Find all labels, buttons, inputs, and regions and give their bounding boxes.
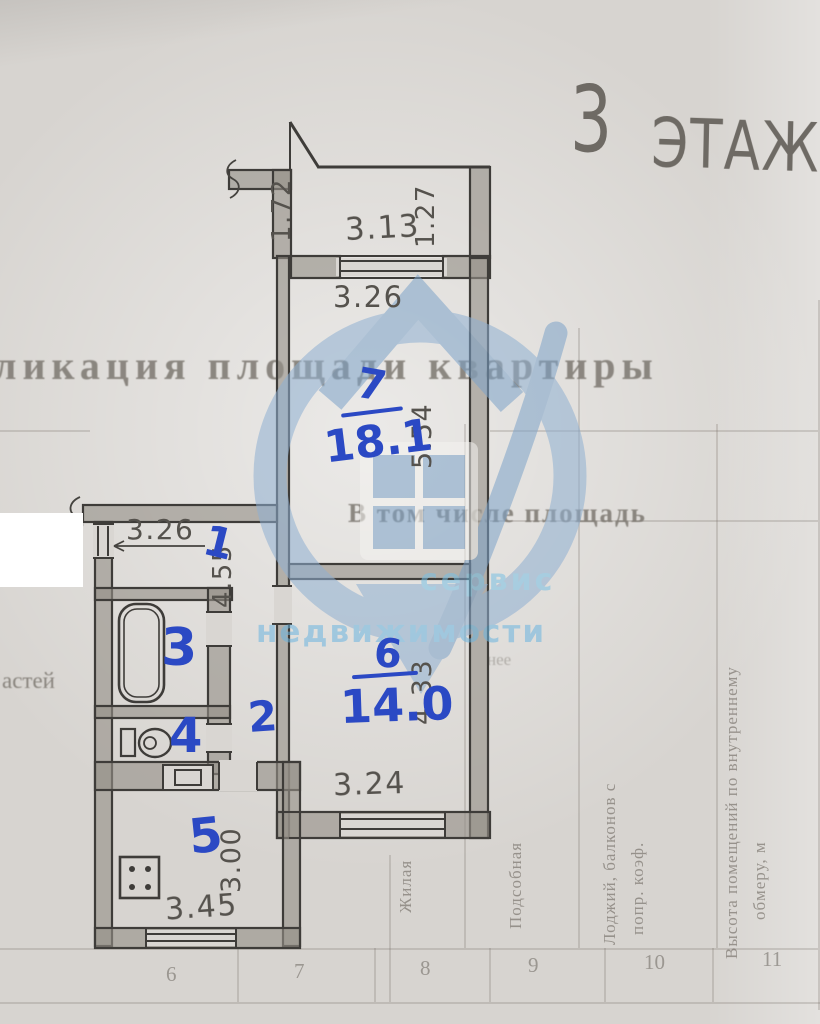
dim-balcony-side-right: 1.27 <box>413 184 439 248</box>
dim-balcony-side-left: 1.72 <box>269 178 295 242</box>
dim-room6-window: 3.24 <box>332 769 406 802</box>
redaction-box <box>0 513 83 587</box>
dim-room7-width: 3.26 <box>333 283 404 312</box>
room-number-5: 5 <box>187 810 225 861</box>
room-number-3: 3 <box>161 622 197 674</box>
floor-word: ЭТАЖ <box>651 110 820 184</box>
dim-balcony-width: 3.13 <box>344 211 421 246</box>
dim-kitchen-width: 3.45 <box>164 890 239 925</box>
room-number-2: 2 <box>247 695 279 739</box>
dim-room1-width: 3.26 <box>126 516 194 544</box>
room-number-4: 4 <box>169 712 202 760</box>
scanned-floor-plan-page: ликация площади квартиры В том числе пло… <box>0 0 820 1024</box>
watermark-text-line1: сервис <box>420 563 555 598</box>
room-6-area: 14.0 <box>339 680 454 730</box>
floor-number: 3 <box>570 74 612 166</box>
room-number-6: 6 <box>372 633 404 676</box>
room-7-area: 18.1 <box>322 414 435 471</box>
